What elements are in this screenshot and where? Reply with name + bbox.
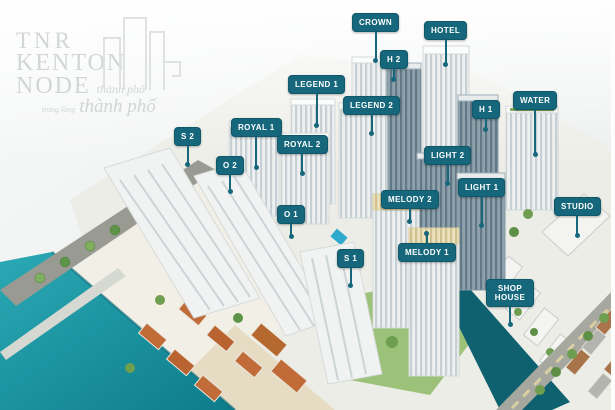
logo-text-node: NODE [16,75,91,98]
label-pointer [187,146,189,163]
label-pointer [393,69,395,78]
label-text-light-2: LIGHT 2 [424,146,471,165]
masterplan-aerial-view: TNR KENTON NODE thành phố trong lòng thà… [0,0,615,410]
label-pointer [375,32,377,59]
label-text-water: WATER [513,91,557,110]
logo-building-icon [102,14,198,122]
image-margin [611,0,615,410]
building-label-h2: H 2 [380,50,408,78]
label-pointer [301,154,303,172]
label-text-legend-2: LEGEND 2 [343,96,400,115]
building-label-light-2: LIGHT 2 [424,146,471,182]
label-pointer [576,216,578,234]
label-pointer [316,94,318,124]
label-pointer [534,110,536,153]
label-text-h2: H 2 [380,50,408,69]
building-label-h1: H 1 [472,100,500,128]
label-pointer [445,40,447,63]
label-text-s1: S 1 [337,249,364,268]
label-text-studio: STUDIO [554,197,601,216]
building-label-light-1: LIGHT 1 [458,178,505,224]
building-label-o2: O 2 [216,156,244,190]
building-label-o1: O 1 [277,205,305,235]
label-text-o1: O 1 [277,205,305,224]
building-label-hotel: HOTEL [424,21,467,63]
label-text-royal-1: ROYAL 1 [231,118,282,137]
label-text-melody-1: MELODY 1 [398,243,456,262]
building-label-s2: S 2 [174,127,201,163]
label-text-hotel: HOTEL [424,21,467,40]
label-pointer [485,119,487,128]
building-label-melody-2: MELODY 2 [381,190,439,220]
label-pointer [409,209,411,220]
label-text-crown: CROWN [352,13,399,32]
label-pointer [447,165,449,182]
building-label-shop-house: SHOP HOUSE [486,279,534,323]
building-label-legend-1: LEGEND 1 [288,75,345,124]
label-pointer [481,197,483,224]
label-pointer [229,175,231,190]
label-pointer [509,307,511,323]
label-text-melody-2: MELODY 2 [381,190,439,209]
label-pointer [371,115,373,132]
tnr-kenton-node-logo: TNR KENTON NODE thành phố trong lòng thà… [16,30,156,116]
building-label-melody-1: MELODY 1 [398,235,456,262]
label-text-s2: S 2 [174,127,201,146]
label-text-light-1: LIGHT 1 [458,178,505,197]
label-text-o2: O 2 [216,156,244,175]
label-pointer [255,137,257,166]
label-text-shop-house: SHOP HOUSE [486,279,534,307]
label-pointer [350,268,352,284]
label-pointer [426,235,428,243]
label-text-legend-1: LEGEND 1 [288,75,345,94]
label-text-royal-2: ROYAL 2 [277,135,328,154]
logo-tagline-small: trong lòng [42,106,75,117]
building-label-s1: S 1 [337,249,364,284]
building-label-water: WATER [513,91,557,153]
building-label-studio: STUDIO [554,197,601,234]
label-pointer [290,224,292,235]
building-label-legend-2: LEGEND 2 [343,96,400,132]
building-label-royal-2: ROYAL 2 [277,135,328,172]
label-text-h1: H 1 [472,100,500,119]
